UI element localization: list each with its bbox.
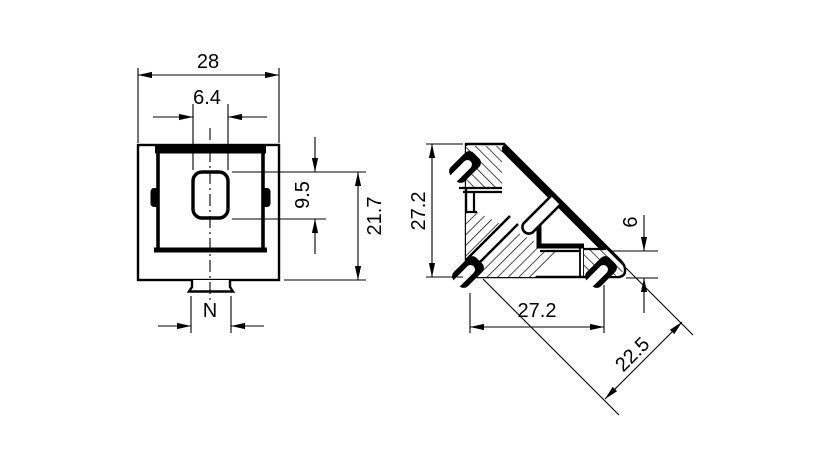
front-notch-right xyxy=(262,188,271,207)
dim-label-width: 28 xyxy=(197,51,219,73)
side-view xyxy=(444,144,625,293)
dim-label-tab-width: N xyxy=(203,300,217,322)
drawing-sheet: 28 6.4 9.5 21.7 N xyxy=(0,0,827,472)
dim-label-foot-height: 6 xyxy=(620,216,642,227)
front-view xyxy=(138,128,279,302)
dim-label-slot-height: 9.5 xyxy=(292,181,314,209)
technical-drawing-canvas: 28 6.4 9.5 21.7 N xyxy=(0,0,827,472)
ext-line xyxy=(606,248,693,335)
dim-label-diagonal: 22.5 xyxy=(611,333,654,376)
front-notch-left xyxy=(151,188,160,207)
front-bottom-tab xyxy=(189,280,233,292)
dim-label-height: 27.2 xyxy=(408,192,430,231)
side-view-dimensions: 27.2 27.2 6 22.5 xyxy=(408,144,693,415)
dim-label-slot-to-base: 21.7 xyxy=(364,197,386,236)
dim-label-slot-width: 6.4 xyxy=(193,87,221,109)
